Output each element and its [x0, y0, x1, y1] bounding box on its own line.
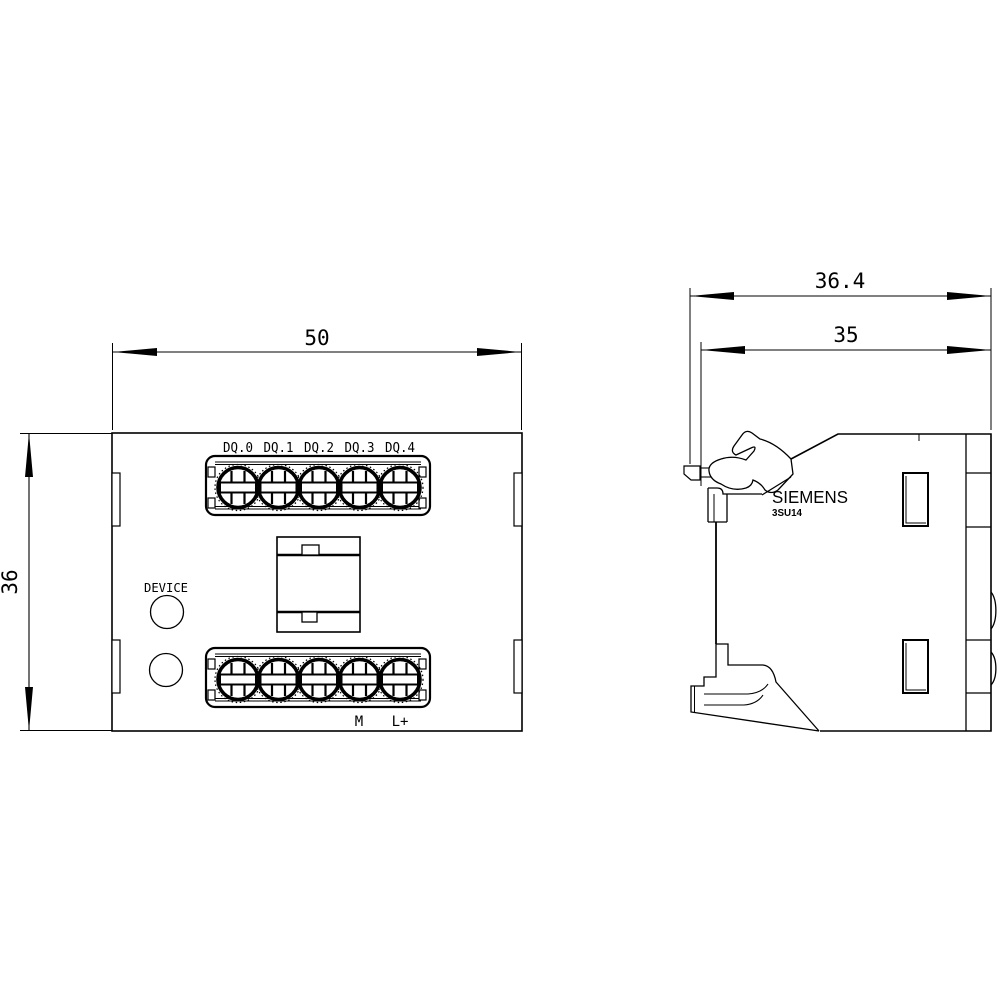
dim-arrow-up [25, 433, 33, 477]
body-notch-left-bottom [112, 640, 120, 693]
device-indicator-circle [151, 596, 184, 629]
front-view: DQ.0 DQ.1 DQ.2 DQ.3 DQ.4 M L+ DEVICE [0, 326, 522, 731]
dim-height-value: 36 [0, 569, 22, 594]
terminal-label-lplus: L+ [392, 714, 409, 730]
terminal-label-dq0: DQ.0 [223, 440, 253, 456]
dim-width-value: 50 [304, 326, 329, 350]
dim-arrow-left [113, 348, 157, 356]
dim-arrow-right [947, 346, 991, 354]
clip-foot [684, 466, 700, 480]
dim-arrow-right [477, 348, 521, 356]
terminal-labels-row: DQ.0 DQ.1 DQ.2 DQ.3 DQ.4 [223, 440, 415, 456]
module-connector [277, 537, 360, 632]
terminal-block-top [206, 456, 430, 515]
dim-arrow-left [690, 292, 734, 300]
dim-overall-depth-value: 36.4 [815, 269, 866, 293]
side-view: SIEMENS 3SU14 36.4 35 [684, 269, 996, 731]
device-label: DEVICE [144, 580, 188, 595]
dim-arrow-right [947, 292, 991, 300]
din-rail-clip [684, 431, 793, 495]
indicator-circle [150, 654, 183, 687]
dim-arrow-down [25, 687, 33, 731]
dim-arrow-left [701, 346, 745, 354]
terminal-block-bottom [206, 648, 430, 707]
terminal-label-dq1: DQ.1 [264, 440, 294, 456]
mounting-hook-bottom [691, 644, 819, 731]
terminal-label-m: M [355, 714, 363, 730]
body-notch-left-top [112, 473, 120, 526]
dim-height-36: 36 [0, 433, 112, 731]
body-notch-right-top [514, 473, 522, 526]
dimensional-drawing: DQ.0 DQ.1 DQ.2 DQ.3 DQ.4 M L+ DEVICE [0, 0, 1000, 1000]
vent-slot-bottom [903, 640, 928, 693]
terminal-label-dq3: DQ.3 [345, 440, 375, 456]
terminal-label-dq2: DQ.2 [304, 440, 334, 456]
drawing-canvas: DQ.0 DQ.1 DQ.2 DQ.3 DQ.4 M L+ DEVICE [0, 0, 1000, 1000]
body-notch-right-bottom [514, 640, 522, 693]
dim-width-50: 50 [113, 326, 522, 430]
model-text: 3SU14 [772, 507, 802, 519]
brand-text: SIEMENS [772, 487, 848, 507]
dim-body-depth-value: 35 [833, 323, 858, 347]
connector-key-top [302, 545, 319, 555]
mounting-hook-top [708, 488, 762, 644]
side-body [791, 434, 991, 731]
connector-key-bottom [302, 612, 317, 622]
terminal-label-dq4: DQ.4 [385, 440, 415, 456]
vent-slot-top [903, 473, 928, 526]
